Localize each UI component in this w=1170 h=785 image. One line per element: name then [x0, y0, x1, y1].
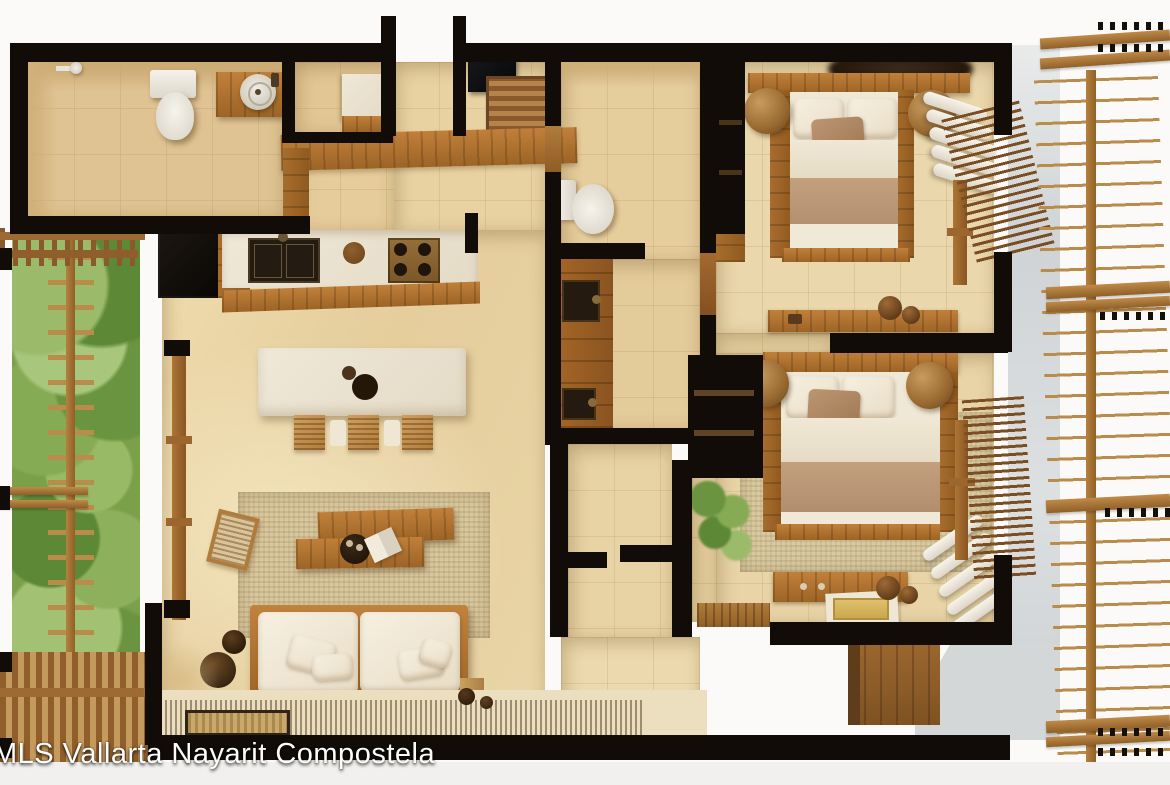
deck-pillar: [145, 603, 162, 745]
kitchen-sink-basin-right: [286, 244, 314, 278]
desk-gourd-2: [902, 306, 920, 324]
wall-center-upper: [545, 43, 561, 126]
bed2-door-threshold: [697, 603, 770, 627]
tray-cup-1: [346, 540, 353, 547]
hall-corridor-floor: [568, 444, 672, 637]
hanging-plant: [686, 478, 758, 562]
entry-closet-cabinet: [342, 74, 384, 120]
vanity-faucet-2: [588, 398, 597, 407]
entry-jamb-left: [381, 16, 396, 136]
bath1-faucet: [271, 73, 279, 87]
deck-pot-1: [458, 688, 475, 705]
trellis-ticks-bottom-2: [1098, 748, 1170, 756]
bedroom2-closet-shelf: [694, 390, 754, 396]
garden-bottom-post-1: [0, 652, 12, 672]
bed2-blanket: [781, 462, 940, 512]
bar-stool-1: [294, 415, 325, 450]
refrigerator: [158, 226, 220, 298]
desk-gourd-1: [878, 296, 902, 320]
wall-bath1-bottom: [10, 216, 310, 234]
center-door-threshold: [545, 126, 561, 172]
bench-gourd-2: [900, 586, 918, 604]
wall-top-left: [10, 43, 396, 62]
doormat: [185, 710, 290, 736]
wicker-dresser: [486, 76, 551, 134]
trellis-ticks-bottom-1: [1098, 728, 1170, 736]
garden-mid-beam-1: [0, 487, 88, 495]
wall-right-top: [994, 43, 1012, 135]
floorplan-render: MLS Vallarta Nayarit Compostela: [0, 0, 1170, 785]
wall-outer-left: [10, 43, 28, 234]
bar-stool-2: [348, 415, 379, 450]
island-bowl-small: [342, 366, 356, 380]
living-window-mullion-2: [166, 518, 192, 526]
bathroom-2-wall-shade: [561, 62, 700, 88]
bedroom1-closet-shelf-line-2: [719, 170, 742, 175]
stove-burner-3: [394, 263, 407, 276]
trellis-ticks-mid1: [1100, 312, 1170, 320]
living-window-post-bottom: [164, 600, 190, 618]
trellis-ticks-top-2: [1098, 44, 1170, 52]
entry-closet-cabinet-top: [342, 116, 384, 132]
wall-bedside-upper: [700, 43, 716, 253]
island-bowl-large: [352, 374, 378, 400]
walkway-band-corner: [283, 148, 309, 224]
wall-center-lower: [545, 172, 561, 445]
wall-right-mid: [994, 252, 1012, 352]
garden-mid-post: [0, 486, 10, 510]
toilet-2-bowl: [572, 184, 614, 234]
bed1-footboard: [782, 248, 910, 262]
stove-burner-1: [394, 243, 407, 256]
bed1-pouf-left: [744, 88, 790, 134]
pergola-top-rail-2: [0, 250, 138, 258]
bed1-sheet: [790, 140, 898, 178]
living-window-post-top: [164, 340, 190, 356]
wall-corridor-left: [550, 444, 568, 637]
wall-corridor-left-stub: [550, 552, 607, 568]
clay-vase-small: [222, 630, 246, 654]
bathroom-1-wall-shade-left: [28, 62, 58, 216]
bed2-sheet: [781, 418, 940, 462]
kitchen-wall-stub: [465, 213, 478, 253]
wall-top-right: [453, 43, 1012, 62]
bed1-blanket: [790, 178, 898, 224]
bedrooms-doorway-floor: [716, 333, 830, 353]
wall-bath2-bottom: [545, 243, 645, 259]
garden-mid-beam-2: [0, 500, 88, 508]
vanity-faucet-1: [592, 295, 601, 304]
wardrobe: [848, 645, 940, 725]
toilet-1-bowl: [156, 92, 194, 140]
living-window-mullion-1: [166, 436, 192, 444]
bench-gourd-1: [876, 576, 900, 600]
pergola-top-post: [0, 248, 12, 270]
living-window-frame: [172, 352, 186, 620]
shower-head: [70, 62, 82, 74]
bed1-door-jamb: [700, 253, 716, 315]
bedroom2-closet-shelf-2: [694, 430, 754, 436]
tray-cup-2: [356, 544, 363, 551]
stool-cushion-1: [330, 420, 346, 446]
bed2-footboard: [775, 524, 940, 540]
trellis-ticks-top-1: [1098, 22, 1170, 30]
bath1-sink-drain: [255, 89, 261, 95]
bedroom1-closet-shelf-line: [719, 120, 742, 125]
kitchen-sink-basin-left: [254, 244, 282, 278]
wall-corridor-right-stub: [620, 545, 692, 562]
wall-closet-bottom: [282, 132, 393, 143]
bench-handle-1: [800, 583, 807, 590]
wall-bath1-right: [282, 60, 295, 140]
desk-deco: [788, 314, 802, 324]
entry-jamb-right: [453, 16, 466, 136]
bed2-pouf-right: [906, 362, 953, 409]
wall-bedroom-divider: [830, 333, 1008, 353]
bench-handle-2: [818, 583, 825, 590]
bed2-louver-shutter: [962, 396, 1036, 580]
stove-burner-2: [418, 243, 431, 256]
deck-pot-2: [480, 696, 493, 709]
trellis-ticks-mid2: [1105, 508, 1170, 517]
stove-burner-4: [418, 263, 431, 276]
stool-cushion-2: [384, 420, 400, 446]
trellis-rungs: [1034, 76, 1170, 768]
bed1-closet-shelf: [716, 232, 745, 262]
bar-stool-3: [402, 415, 433, 450]
wardrobe-side: [848, 645, 860, 725]
bedroom2-closet-block: [688, 355, 763, 478]
trellis-post: [1086, 70, 1096, 766]
watermark: MLS Vallarta Nayarit Compostela: [0, 738, 435, 771]
sofa-pillow-2: [311, 653, 353, 682]
garden-bottom-rail: [0, 688, 152, 697]
bedroom1-closet-column: [716, 62, 745, 234]
wall-bedroom2-bottom: [770, 622, 1012, 645]
yellow-book-tray: [833, 598, 889, 620]
cutting-board: [343, 242, 365, 264]
